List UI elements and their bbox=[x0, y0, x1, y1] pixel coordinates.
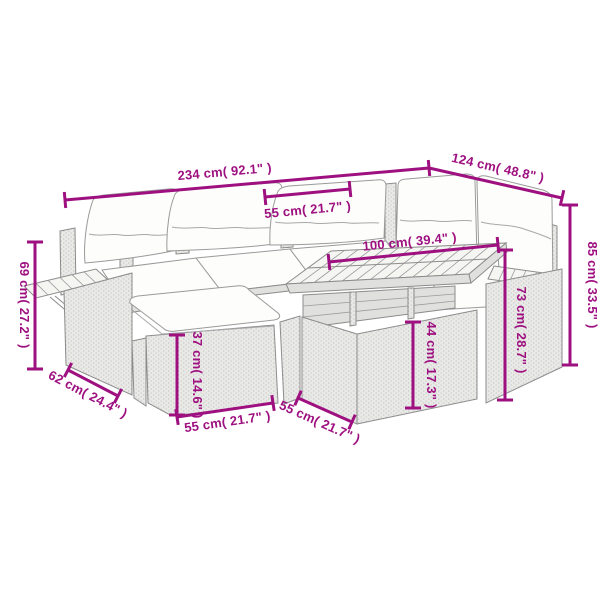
left-arm-panel bbox=[64, 273, 132, 395]
dimension-back-height: 69 cm( 27.2" ) bbox=[17, 242, 43, 369]
dimension-total-height: 85 cm( 33.5" ) bbox=[562, 205, 600, 365]
storage-table bbox=[286, 243, 507, 424]
diagram-canvas: 234 cm( 92.1" ) 124 cm( 48.8" ) 55 cm( 2… bbox=[0, 0, 600, 600]
dim-label-ottoman-height: 37 cm( 14.6" ) bbox=[190, 331, 205, 418]
back-cushion-1 bbox=[85, 189, 178, 263]
sofa-base-strip bbox=[280, 316, 300, 404]
dim-label-arm-height: 73 cm( 28.7" ) bbox=[514, 286, 529, 373]
ottoman-body bbox=[146, 325, 278, 416]
dim-label-back-height: 69 cm( 27.2" ) bbox=[17, 261, 32, 348]
sofa-base-strip-left bbox=[132, 338, 146, 406]
dim-label-table-height: 44 cm( 17.3" ) bbox=[424, 321, 439, 408]
dim-label-total-height: 85 cm( 33.5" ) bbox=[585, 241, 600, 328]
table-body-left-face bbox=[302, 317, 357, 424]
product-dimension-diagram: 234 cm( 92.1" ) 124 cm( 48.8" ) 55 cm( 2… bbox=[0, 0, 600, 600]
dim-label-total-width: 234 cm( 92.1" ) bbox=[177, 160, 272, 183]
